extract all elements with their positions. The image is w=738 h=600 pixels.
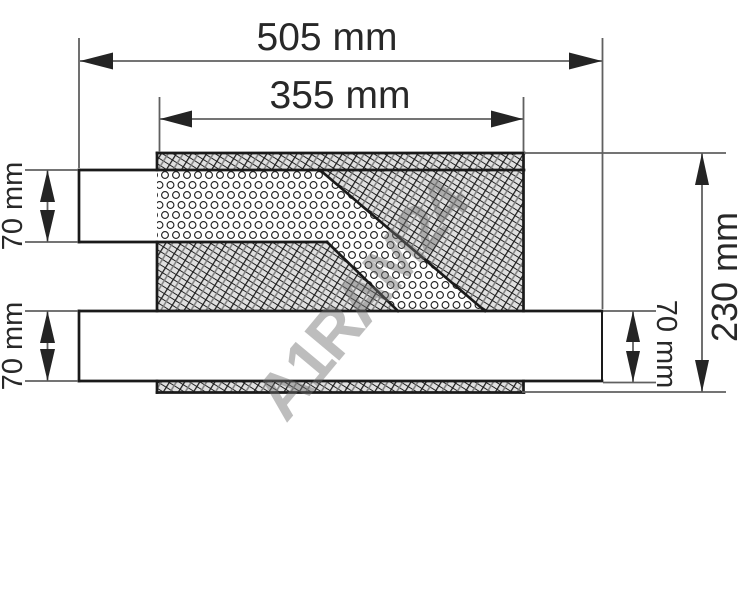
svg-text:70 mm: 70 mm <box>650 300 682 389</box>
svg-text:70 mm: 70 mm <box>0 302 29 391</box>
svg-text:355 mm: 355 mm <box>270 74 411 117</box>
svg-text:230 mm: 230 mm <box>704 212 738 342</box>
svg-text:70 mm: 70 mm <box>0 162 29 251</box>
svg-text:505 mm: 505 mm <box>257 16 398 59</box>
